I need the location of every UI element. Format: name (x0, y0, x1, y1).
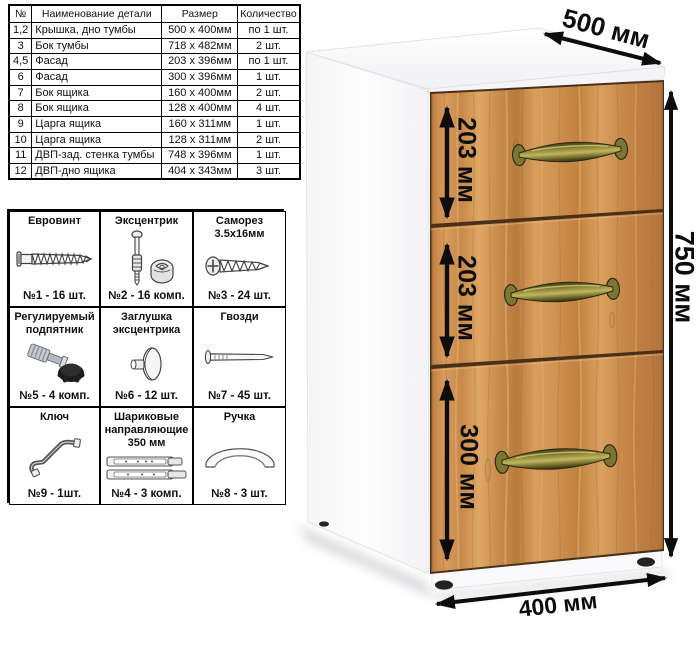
hardware-name: Гвозди (220, 311, 258, 324)
header-part-name: Наименование детали (32, 5, 162, 23)
hardware-count: №4 - 3 комп. (111, 489, 181, 502)
ball-slides-icon (106, 450, 188, 489)
hardware-cell-excentric: Эксцентрик №2 - 16 комп. (100, 211, 193, 307)
part-quantity: 2 шт. (238, 132, 300, 148)
part-number: 11 (9, 148, 32, 164)
part-name: Фасад (32, 69, 162, 85)
part-quantity: 3 шт. (238, 163, 300, 179)
part-number: 3 (9, 38, 32, 54)
hardware-name: Эксцентрик (115, 215, 178, 228)
header-number: № (9, 5, 32, 23)
table-row: 12 ДВП-дно ящика 404 х 343мм 3 шт. (9, 163, 300, 179)
hardware-name: Саморез 3.5х16мм (196, 215, 283, 241)
part-quantity: 4 шт. (238, 101, 300, 117)
part-number: 12 (9, 163, 32, 179)
hardware-name: Заглушка эксцентрика (103, 311, 190, 337)
table-row: 4,5 Фасад 203 х 396мм по 1 шт. (9, 54, 300, 70)
cabinet-foot (435, 580, 453, 589)
part-quantity: 1 шт. (238, 148, 300, 164)
hardware-count: №8 - 3 шт. (211, 489, 267, 502)
hardware-name: Ручка (224, 411, 255, 424)
part-quantity: 1 шт. (238, 116, 300, 132)
part-number: 7 (9, 85, 32, 101)
header-quantity: Количество (238, 5, 300, 23)
table-row: 6 Фасад 300 х 396мм 1 шт. (9, 69, 300, 85)
part-size: 748 х 396мм (162, 148, 238, 164)
parts-table-header-row: № Наименование детали Размер Количество (9, 5, 300, 23)
hardware-cell-podpyatnik: Регулируемый подпятник (9, 307, 100, 407)
cabinet-foot (319, 521, 329, 526)
hardware-grid: Евровинт №1 - 16 шт. Эксцентрик (7, 209, 284, 503)
hardware-name: Регулируемый подпятник (12, 311, 97, 337)
part-size: 160 х 400мм (162, 85, 238, 101)
cabinet-side-panel (306, 52, 429, 574)
hardware-cell-napravlyayushchie: Шариковые направляющие 350 мм №4 - 3 ком… (100, 407, 193, 505)
hardware-name: Ключ (40, 411, 69, 424)
part-size: 128 х 311мм (162, 132, 238, 148)
table-row: 9 Царга ящика 160 х 311мм 1 шт. (9, 116, 300, 132)
handle-icon (203, 424, 277, 489)
table-row: 8 Бок ящика 128 х 400мм 4 шт. (9, 101, 300, 117)
hardware-cell-klyuch: Ключ №9 - 1шт. (9, 407, 100, 505)
adjustable-foot-icon (24, 337, 86, 391)
part-size: 500 х 400мм (162, 23, 238, 39)
part-quantity: 2 шт. (238, 85, 300, 101)
euro-screw-icon (15, 228, 95, 291)
part-quantity: 2 шт. (238, 38, 300, 54)
key-icon (26, 424, 84, 489)
part-number: 6 (9, 69, 32, 85)
part-number: 9 (9, 116, 32, 132)
table-row: 11 ДВП-зад. стенка тумбы 748 х 396мм 1 ш… (9, 148, 300, 164)
part-name: Бок ящика (32, 85, 162, 101)
table-row: 3 Бок тумбы 718 х 482мм 2 шт. (9, 38, 300, 54)
part-name: Крышка, дно тумбы (32, 23, 162, 39)
hardware-count: №7 - 45 шт. (208, 391, 271, 404)
part-quantity: по 1 шт. (238, 54, 300, 70)
table-row: 1,2 Крышка, дно тумбы 500 х 400мм по 1 ш… (9, 23, 300, 39)
table-row: 7 Бок ящика 160 х 400мм 2 шт. (9, 85, 300, 101)
hardware-cell-gvozdi: Гвозди №7 - 45 шт. (193, 307, 286, 407)
nail-icon (203, 324, 277, 391)
part-quantity: 1 шт. (238, 69, 300, 85)
part-number: 4,5 (9, 54, 32, 70)
part-quantity: по 1 шт. (238, 23, 300, 39)
hardware-count: №1 - 16 шт. (23, 291, 86, 304)
part-size: 404 х 343мм (162, 163, 238, 179)
part-size: 300 х 396мм (162, 69, 238, 85)
cam-lock-icon (115, 228, 179, 291)
hardware-count: №5 - 4 комп. (19, 391, 89, 404)
part-name: Фасад (32, 54, 162, 70)
part-size: 160 х 311мм (162, 116, 238, 132)
self-tapping-screw-icon (204, 241, 276, 291)
hardware-count: №6 - 12 шт. (115, 391, 178, 404)
part-name: Царга ящика (32, 132, 162, 148)
part-name: ДВП-дно ящика (32, 163, 162, 179)
hardware-count: №2 - 16 комп. (108, 291, 185, 304)
part-name: Бок тумбы (32, 38, 162, 54)
part-number: 8 (9, 101, 32, 117)
hardware-cell-ruchka: Ручка №8 - 3 шт. (193, 407, 286, 505)
hardware-cell-zaglushka: Заглушка эксцентрика №6 - 12 шт. (100, 307, 193, 407)
part-size: 203 х 396мм (162, 54, 238, 70)
table-row: 10 Царга ящика 128 х 311мм 2 шт. (9, 132, 300, 148)
part-size: 128 х 400мм (162, 101, 238, 117)
part-number: 1,2 (9, 23, 32, 39)
part-name: ДВП-зад. стенка тумбы (32, 148, 162, 164)
hardware-count: №9 - 1шт. (28, 489, 81, 502)
part-number: 10 (9, 132, 32, 148)
cabinet-foot (637, 557, 655, 566)
parts-table: № Наименование детали Размер Количество … (8, 4, 301, 180)
part-size: 718 х 482мм (162, 38, 238, 54)
hardware-cell-eurovint: Евровинт №1 - 16 шт. (9, 211, 100, 307)
cam-cap-icon (125, 337, 169, 391)
header-size: Размер (162, 5, 238, 23)
hardware-name: Шариковые направляющие 350 мм (103, 411, 190, 450)
hardware-count: №3 - 24 шт. (208, 291, 271, 304)
hardware-cell-samorez: Саморез 3.5х16мм №3 - 24 шт. (193, 211, 286, 307)
part-name: Бок ящика (32, 101, 162, 117)
part-name: Царга ящика (32, 116, 162, 132)
hardware-name: Евровинт (28, 215, 81, 228)
